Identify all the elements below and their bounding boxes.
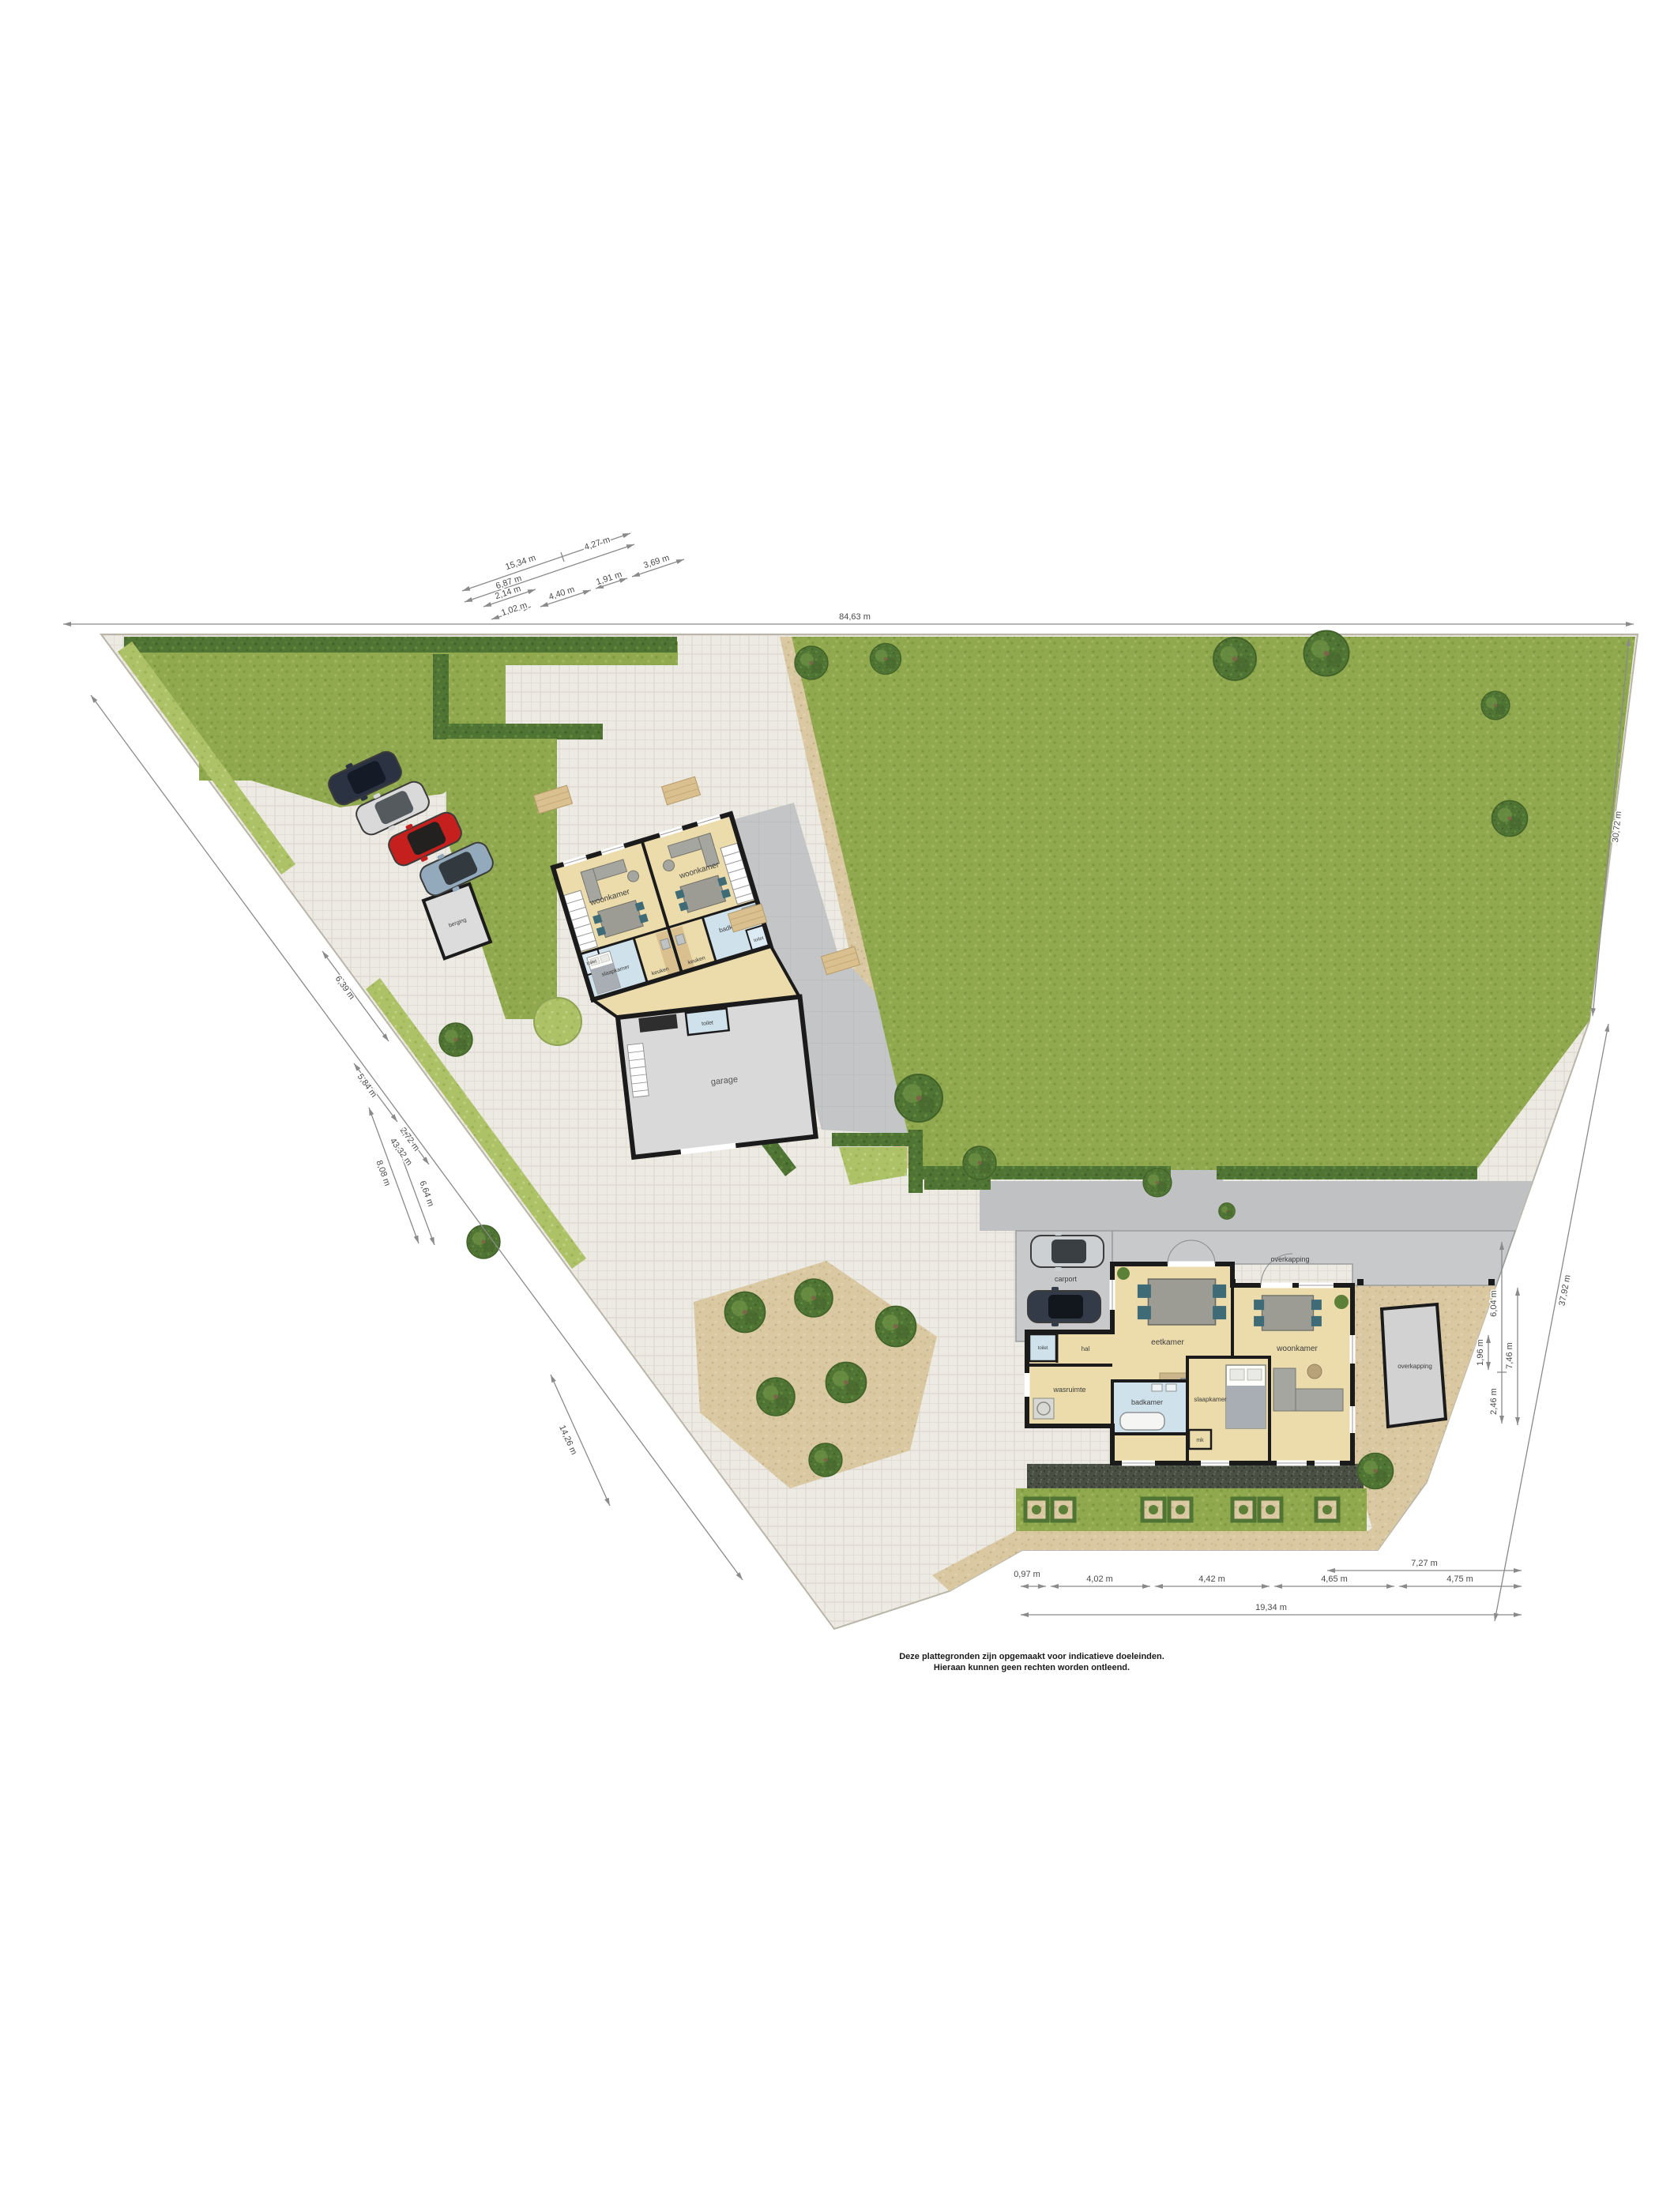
- parterre-square: [1025, 1499, 1048, 1521]
- site-plan-page: woonkamer woonkamer slaapkamer keuken to…: [0, 0, 1659, 2212]
- detached-canopy: overkapping: [1382, 1304, 1446, 1427]
- dim-site-width: 84,63 m: [839, 612, 871, 622]
- dim-top-0: 15,34 m: [504, 553, 537, 572]
- parterre-square: [1142, 1499, 1164, 1521]
- label-canopy-right: overkapping: [1398, 1363, 1432, 1370]
- dim-top-7: 3,69 m: [642, 553, 671, 570]
- dim-right-5: 7,46 m: [1505, 1342, 1514, 1369]
- dining-set: [1254, 1296, 1322, 1330]
- garage: toilet garage: [618, 997, 816, 1157]
- label-carport: carport: [1055, 1275, 1078, 1283]
- dim-top-1: 4,27 m: [583, 535, 611, 552]
- car-dark: [1028, 1287, 1100, 1326]
- dim-right-4: 2,46 m: [1489, 1388, 1499, 1415]
- parterre-square: [1232, 1499, 1255, 1521]
- site-plan: woonkamer woonkamer slaapkamer keuken to…: [0, 0, 1659, 2212]
- disclaimer: Deze plattegronden zijn opgemaakt voor i…: [899, 1652, 1164, 1672]
- disclaimer-line1: Deze plattegronden zijn opgemaakt voor i…: [899, 1652, 1164, 1661]
- dim-right-3: 1,96 m: [1476, 1339, 1485, 1366]
- disclaimer-line2: Hieraan kunnen geen rechten worden ontle…: [934, 1663, 1130, 1672]
- room-label-bedroom: slaapkamer: [1194, 1396, 1227, 1403]
- bathtub: [1120, 1413, 1164, 1430]
- room-label-hall: hal: [1082, 1345, 1090, 1352]
- dim-right-2: 6,04 m: [1489, 1290, 1499, 1317]
- room-label-living: woonkamer: [1276, 1345, 1318, 1353]
- dim-top-4: 1,02 m: [500, 600, 529, 618]
- dim-bottom-1: 4,02 m: [1086, 1574, 1113, 1584]
- room-label-bathroom: badkamer: [1131, 1398, 1163, 1406]
- dim-bottom-2: 4,42 m: [1198, 1574, 1225, 1584]
- dim-bottom-3: 4,65 m: [1321, 1574, 1348, 1584]
- dim-bottom-4: 4,75 m: [1446, 1574, 1473, 1584]
- room-label-toilet: toilet: [1038, 1346, 1048, 1351]
- label-canopy: overkapping: [1270, 1255, 1309, 1263]
- room-label-closet: mk: [1196, 1438, 1204, 1443]
- dim-bottom-5: 7,27 m: [1411, 1559, 1438, 1568]
- dim-bottom-6: 19,34 m: [1255, 1603, 1287, 1612]
- dim-left-0: 6,39 m: [333, 974, 356, 1001]
- driveway-band: [980, 1181, 1533, 1231]
- round-bush: [534, 998, 581, 1045]
- room-label-laundry: wasruimte: [1052, 1386, 1085, 1394]
- bed: [1226, 1365, 1266, 1428]
- washer: [1033, 1398, 1054, 1419]
- dim-bottom-0: 0,97 m: [1014, 1570, 1040, 1579]
- dining-set: [1138, 1279, 1226, 1325]
- car-carport: [1031, 1232, 1104, 1271]
- parterre-square: [1259, 1499, 1281, 1521]
- gravel-strip: [1027, 1464, 1364, 1488]
- parterre-square: [1052, 1499, 1074, 1521]
- dim-left-1: 5,84 m: [355, 1072, 378, 1099]
- parterre-square: [1169, 1499, 1191, 1521]
- parterre-square: [1316, 1499, 1338, 1521]
- dim-left-4: 6,64 m: [417, 1179, 435, 1208]
- room-label-dining: eetkamer: [1151, 1338, 1184, 1347]
- rear-garden: [1016, 1464, 1367, 1531]
